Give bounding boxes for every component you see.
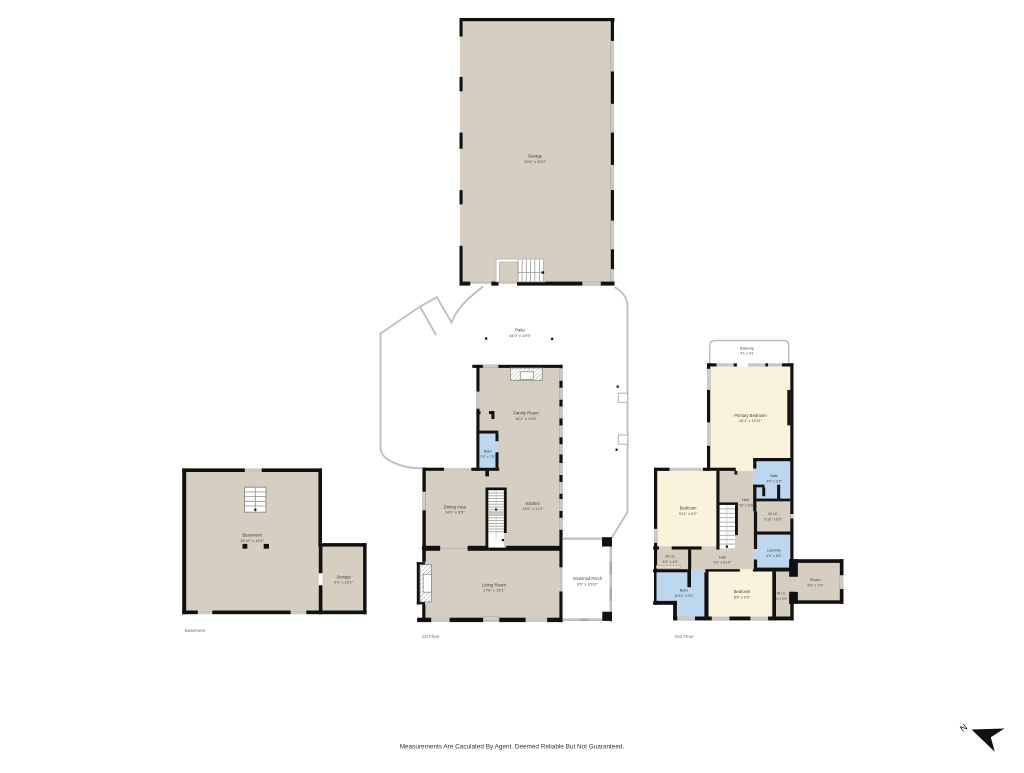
svg-text:Bath: Bath	[770, 474, 778, 478]
svg-text:Kitchen: Kitchen	[526, 501, 541, 506]
svg-text:W.I.C.: W.I.C.	[777, 592, 787, 596]
svg-text:Bedroom: Bedroom	[734, 589, 751, 594]
svg-text:6'10" x 6'5": 6'10" x 6'5"	[765, 518, 783, 522]
svg-text:Primary Bedroom: Primary Bedroom	[734, 413, 767, 418]
svg-text:Patio: Patio	[515, 328, 525, 333]
svg-text:W.I.C.: W.I.C.	[665, 555, 675, 559]
svg-text:10'11" x 9'9": 10'11" x 9'9"	[674, 594, 694, 598]
svg-text:Living Room: Living Room	[482, 582, 506, 587]
svg-text:Dining Area: Dining Area	[444, 504, 467, 509]
svg-text:Basement: Basement	[242, 533, 262, 538]
svg-text:20'4" x 35'0": 20'4" x 35'0"	[524, 159, 547, 164]
svg-text:16'1" x 19'5": 16'1" x 19'5"	[515, 416, 538, 421]
svg-text:Hall: Hall	[742, 498, 749, 502]
svg-text:15'10" x 11'9": 15'10" x 11'9"	[240, 538, 264, 543]
svg-text:16'1" x 10'11": 16'1" x 10'11"	[739, 418, 763, 423]
svg-text:6'5" x 6'5": 6'5" x 6'5"	[766, 554, 782, 558]
svg-text:6'4" x 4'5": 6'4" x 4'5"	[663, 560, 679, 564]
svg-text:4'1 x 4'1: 4'1 x 4'1	[740, 352, 754, 356]
svg-text:9'4" x 15'1": 9'4" x 15'1"	[334, 580, 354, 585]
svg-text:2nd Floor: 2nd Floor	[674, 634, 694, 639]
svg-text:4'5" x 8'5": 4'5" x 8'5"	[766, 479, 782, 483]
svg-text:W.I.C.: W.I.C.	[768, 512, 778, 516]
svg-text:9'6" x 15'10": 9'6" x 15'10"	[577, 582, 599, 587]
svg-text:7'10" x 6'9": 7'10" x 6'9"	[736, 504, 754, 508]
svg-text:7'6" x 7'5": 7'6" x 7'5"	[480, 455, 496, 459]
svg-text:Basement: Basement	[185, 628, 206, 633]
svg-text:9'3" x 6'10": 9'3" x 6'10"	[713, 561, 731, 565]
svg-text:Laundry: Laundry	[767, 549, 781, 553]
svg-text:14'0" x 8'5": 14'0" x 8'5"	[445, 510, 465, 515]
svg-text:17'8" x 15'1": 17'8" x 15'1"	[483, 588, 506, 593]
svg-text:Garage: Garage	[528, 154, 543, 159]
svg-text:Screened Porch: Screened Porch	[573, 576, 603, 581]
svg-text:Measurements Are Caculated By: Measurements Are Caculated By Agent. Dee…	[400, 744, 625, 751]
svg-text:Bath: Bath	[680, 589, 688, 593]
svg-text:Storage: Storage	[337, 574, 352, 579]
svg-text:Family Room: Family Room	[513, 411, 539, 416]
svg-text:9'11" x 9'2": 9'11" x 9'2"	[679, 512, 698, 516]
svg-text:Balcony: Balcony	[740, 345, 754, 350]
svg-text:9'6" x 7'9": 9'6" x 7'9"	[807, 584, 824, 588]
svg-text:Bedroom: Bedroom	[680, 506, 697, 511]
svg-text:44'0" x 19'5": 44'0" x 19'5"	[509, 333, 532, 338]
svg-text:Hall: Hall	[719, 555, 726, 559]
svg-text:Bath: Bath	[484, 450, 492, 454]
svg-text:4' x 9'9": 4' x 9'9"	[776, 597, 789, 601]
svg-text:14'5" x 11'2": 14'5" x 11'2"	[522, 506, 544, 511]
svg-text:1st Floor: 1st Floor	[422, 634, 440, 639]
svg-text:Room: Room	[810, 577, 821, 582]
svg-text:6'9" x 9'9": 6'9" x 9'9"	[734, 596, 751, 600]
